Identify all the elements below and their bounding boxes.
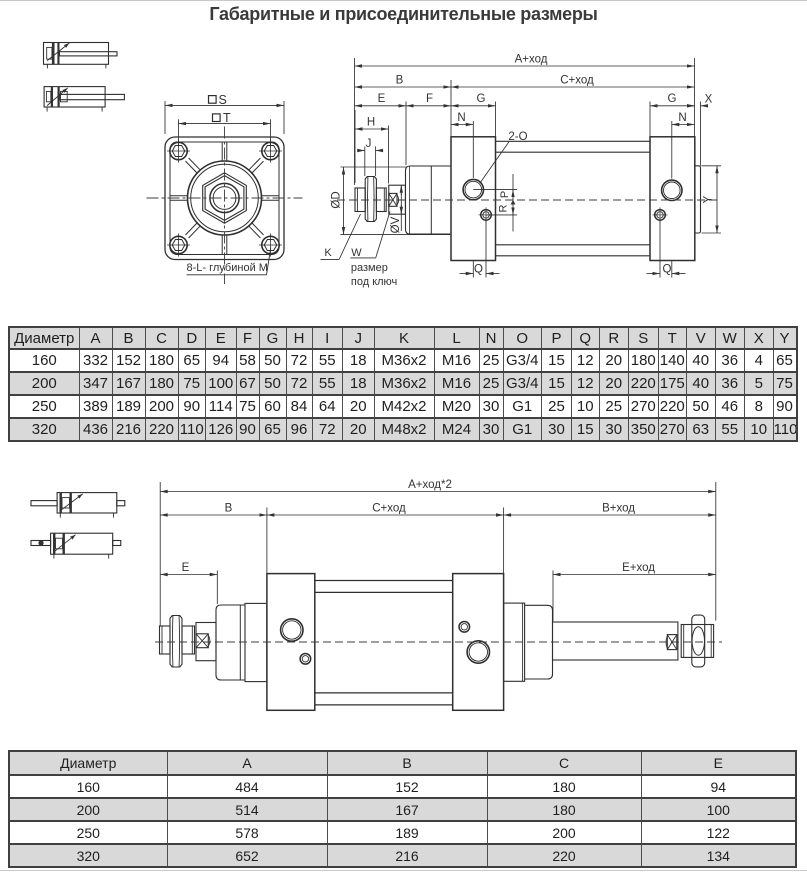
svg-text:G: G — [477, 93, 486, 105]
svg-text:S: S — [219, 93, 227, 107]
svg-text:K: K — [324, 247, 332, 259]
svg-text:ØV: ØV — [390, 216, 402, 233]
svg-text:W: W — [351, 247, 362, 259]
svg-text:N: N — [678, 112, 686, 124]
svg-text:H: H — [367, 116, 375, 128]
svg-text:B: B — [225, 503, 233, 515]
svg-text:J: J — [366, 138, 372, 150]
svg-text:Q: Q — [474, 263, 483, 275]
svg-text:P: P — [499, 191, 511, 198]
svg-text:A+ход*2: A+ход*2 — [408, 479, 452, 491]
svg-text:C+ход: C+ход — [560, 75, 594, 87]
svg-text:8-L- глубиной M: 8-L- глубиной M — [187, 262, 268, 274]
svg-text:B+ход: B+ход — [602, 503, 635, 515]
svg-text:ØD: ØD — [331, 191, 343, 208]
svg-text:B: B — [396, 75, 404, 87]
svg-text:Q: Q — [663, 263, 672, 275]
svg-text:под ключ: под ключ — [351, 276, 397, 288]
svg-text:Y: Y — [703, 195, 715, 203]
svg-text:E: E — [182, 562, 190, 574]
svg-text:F: F — [426, 93, 433, 105]
svg-text:G: G — [668, 93, 677, 105]
svg-text:A+ход: A+ход — [515, 54, 548, 66]
svg-text:R: R — [497, 204, 509, 212]
svg-text:E: E — [378, 93, 386, 105]
svg-text:2-O: 2-O — [508, 131, 527, 143]
svg-text:N: N — [457, 112, 465, 124]
svg-text:размер: размер — [351, 262, 388, 274]
svg-text:E+ход: E+ход — [622, 562, 655, 574]
svg-text:X: X — [705, 94, 713, 106]
svg-text:T: T — [223, 111, 231, 125]
svg-text:C+ход: C+ход — [372, 503, 406, 515]
